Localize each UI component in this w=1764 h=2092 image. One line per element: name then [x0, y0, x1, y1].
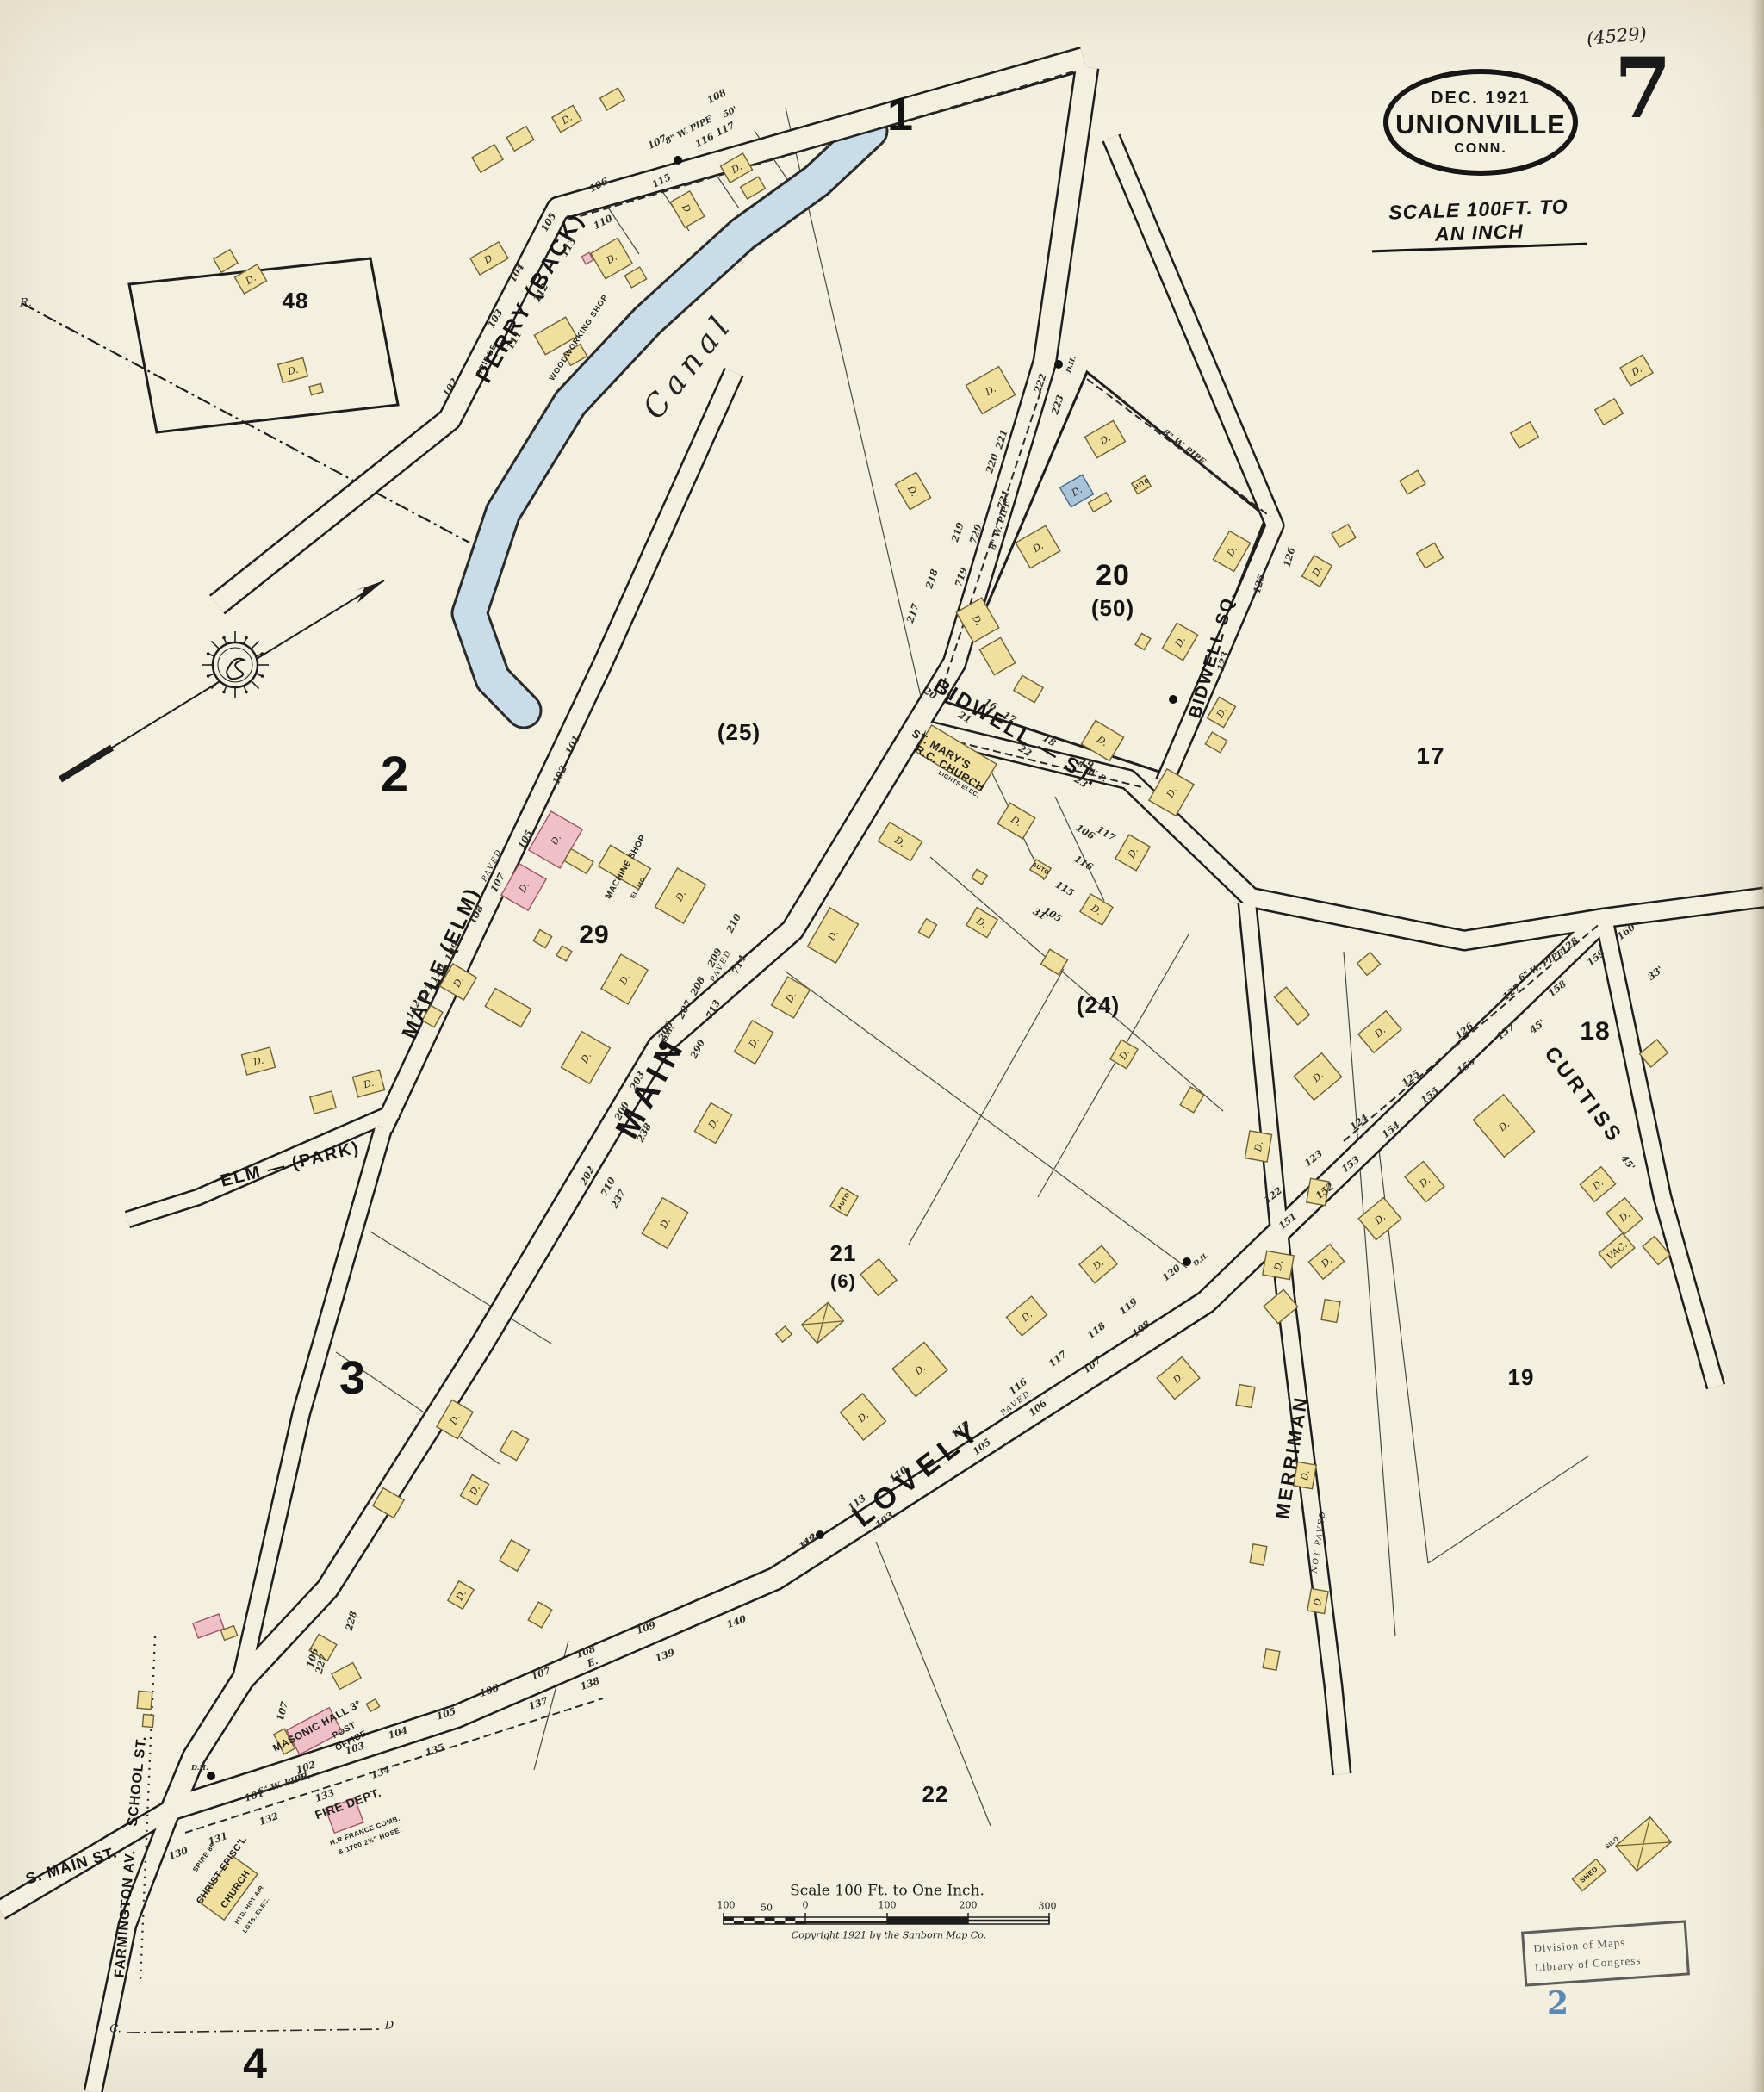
paper-edge-shadow — [1750, 0, 1764, 2092]
house-number: 102 — [441, 376, 459, 398]
district-number: 4 — [243, 2042, 267, 2085]
house-number: E. — [586, 1656, 599, 1669]
house-number: 107 — [646, 133, 668, 151]
scale-text: 100 — [717, 1901, 736, 1910]
street-label: MERRIMAN — [1273, 1394, 1311, 1521]
sanborn-map-sheet: D.D.D.D.D.D.D.D.D.D.D.D.D.D.D.D.D.D.D.D.… — [0, 0, 1764, 2092]
house-number: 107 — [276, 1700, 290, 1722]
house-number: 123 — [1303, 1149, 1325, 1169]
block-number: 29 — [579, 922, 609, 948]
house-number: 130 — [167, 1846, 189, 1861]
scale-text: Scale 100 Ft. to One Inch. — [790, 1884, 984, 1899]
house-number: 107 — [530, 1666, 551, 1681]
house-number: 223 — [1050, 394, 1065, 415]
house-number: 101 — [243, 1788, 264, 1803]
house-number: 101 — [564, 734, 581, 755]
house-number: 45' — [1528, 1018, 1546, 1035]
house-number: 106 — [478, 1683, 500, 1698]
poi-label: AUTO — [837, 1192, 852, 1211]
house-number: 112 — [798, 1532, 819, 1552]
house-number: 122 — [1263, 1186, 1284, 1206]
house-number: 132 — [258, 1811, 279, 1827]
scale-text: 300 — [1039, 1902, 1057, 1911]
house-number: 117 — [1047, 1350, 1069, 1369]
street-label: FARMINGTON AV. — [114, 1849, 139, 1978]
house-number: 217 — [905, 602, 921, 624]
house-number: 219 — [950, 521, 966, 543]
house-number: 228 — [345, 1610, 359, 1631]
house-number: 102 — [551, 764, 568, 785]
poi-label: AUTO — [1031, 861, 1050, 876]
block-number: 21 — [830, 1242, 857, 1264]
house-number: 6" W. PIPE — [1518, 949, 1566, 984]
map-city: UNIONVILLE — [1395, 109, 1566, 140]
house-number: 110 — [592, 214, 613, 231]
house-number: 156 — [1456, 1057, 1477, 1077]
house-number: 105 — [435, 1706, 457, 1722]
poi-label: AUTO — [1132, 478, 1151, 493]
house-number: 159 — [1586, 948, 1607, 968]
house-number: 117 — [1095, 824, 1116, 842]
page-number: 7 — [1614, 40, 1672, 137]
house-number: 115 — [650, 172, 672, 189]
house-number: 135 — [424, 1742, 445, 1758]
house-number: 220 — [984, 452, 1000, 474]
house-number: 115 — [1053, 879, 1075, 897]
house-number: 237 — [610, 1188, 627, 1209]
library-of-congress-stamp: Division of Maps Library of Congress — [1521, 1920, 1690, 1986]
house-number: 160 — [1616, 922, 1637, 942]
map-label-layer: PERRY (BACK)MAPLE (ELM)MAINELM — (PARK)B… — [0, 0, 1764, 2092]
house-number: 137 — [527, 1696, 549, 1711]
house-number: 107 — [1082, 1356, 1103, 1375]
house-number: 153 — [1340, 1155, 1362, 1175]
house-number: D.H. — [1192, 1251, 1210, 1267]
house-number: D.H. — [191, 1764, 208, 1771]
poi-label: WOODWORKING SHOP — [548, 293, 610, 382]
house-number: 120 — [1161, 1263, 1183, 1283]
house-number: 106 — [1028, 1399, 1049, 1418]
italic-label: Copyright 1921 by the Sanborn Map Co. — [792, 1931, 986, 1940]
district-number: 2 — [381, 750, 408, 800]
poi-label: LGTS. ELEC. — [242, 1896, 271, 1934]
house-number: 33' — [1646, 965, 1664, 982]
house-number: 116 — [1072, 854, 1094, 872]
block-number: (25) — [717, 721, 761, 743]
house-number: 729 — [968, 523, 984, 544]
house-number: 218 — [924, 568, 940, 589]
house-number: 118 — [1086, 1321, 1108, 1341]
italic-label: D — [385, 2021, 394, 2032]
house-number: 719 — [953, 566, 969, 587]
publisher-cartouche: DEC. 1921 UNIONVILLE CONN. — [1383, 69, 1578, 176]
house-number: 139 — [654, 1648, 675, 1663]
block-number: (6) — [830, 1272, 856, 1291]
house-number: 208 — [689, 975, 706, 996]
italic-label: C. — [109, 2024, 121, 2035]
poi-label: SILO — [1605, 1835, 1621, 1850]
house-number: 102 — [295, 1760, 316, 1775]
house-number: 154 — [1381, 1120, 1402, 1140]
house-number: 138 — [579, 1676, 600, 1692]
block-number: 19 — [1508, 1366, 1535, 1388]
italic-label: R. — [20, 298, 32, 309]
house-number: 221 — [994, 428, 1009, 450]
house-number: 119 — [1118, 1297, 1140, 1317]
house-number: 222 — [1033, 372, 1048, 394]
house-number: 134 — [370, 1765, 391, 1780]
block-number: 20 — [1096, 561, 1130, 590]
district-number: 3 — [339, 1355, 365, 1401]
block-number: 22 — [922, 1783, 949, 1805]
house-number: 713 — [705, 998, 722, 1020]
italic-label: Canal — [638, 307, 740, 425]
house-number: 127 — [1501, 983, 1523, 1003]
district-number: 1 — [887, 91, 913, 138]
street-label: S. MAIN ST. — [24, 1844, 119, 1886]
house-number: 131 — [207, 1831, 228, 1847]
block-number: (24) — [1077, 994, 1120, 1016]
block-number: 18 — [1580, 1019, 1610, 1045]
scale-text: 50 — [761, 1903, 773, 1913]
house-number: 128 — [1559, 936, 1581, 956]
block-number: (50) — [1091, 597, 1134, 619]
house-number: 124 — [1349, 1113, 1370, 1133]
scale-text: 100 — [879, 1901, 897, 1910]
scale-text: 0 — [803, 1901, 809, 1910]
block-number: 17 — [1416, 744, 1444, 768]
street-label: CURTISS — [1540, 1044, 1625, 1148]
house-number: 152 — [1314, 1182, 1336, 1201]
street-label: SCHOOL ST. — [127, 1735, 150, 1828]
poi-label: EL. MO. — [630, 874, 649, 899]
italic-label: NOT PAVED — [1311, 1510, 1327, 1574]
poi-label: MACHINE SHOP — [605, 834, 649, 901]
registration-number: 2 — [1547, 1988, 1568, 2019]
house-number: 45' — [1619, 1153, 1637, 1172]
street-label: ELM — (PARK) — [219, 1139, 362, 1190]
house-number: 106 — [587, 177, 609, 194]
house-number: 202 — [579, 1164, 596, 1186]
house-number: 126 — [1454, 1021, 1475, 1041]
scale-note: SCALE 100FT. TO AN INCH — [1370, 195, 1587, 253]
house-number: 108 — [1131, 1319, 1152, 1339]
street-label: BIDWELL SQ. — [1186, 589, 1239, 720]
house-number: 140 — [725, 1614, 747, 1630]
map-date: DEC. 1921 — [1431, 89, 1531, 109]
house-number: 714 — [730, 953, 748, 975]
house-number: 155 — [1419, 1086, 1441, 1106]
house-number: 8" W. PIPE — [1160, 429, 1206, 468]
house-number: 109 — [635, 1620, 656, 1636]
house-number: 126 — [1283, 546, 1297, 568]
house-number: 125 — [1252, 573, 1267, 594]
block-number: 48 — [283, 289, 309, 312]
house-number: 105 — [517, 829, 534, 850]
house-number: 158 — [1547, 979, 1568, 999]
house-number: 50' — [722, 106, 739, 121]
house-number: 108 — [705, 88, 727, 105]
scale-text: 200 — [960, 1901, 978, 1910]
house-number: D.H. — [1065, 355, 1076, 373]
house-number: 117 — [714, 121, 736, 138]
house-number: 210 — [725, 912, 742, 934]
house-number: 125 — [1401, 1069, 1422, 1089]
house-number: 116 — [693, 132, 715, 149]
house-number: 106 — [1074, 823, 1096, 841]
map-state: CONN. — [1454, 141, 1507, 157]
poi-label: SHED — [1579, 1865, 1599, 1884]
house-number: 151 — [1277, 1212, 1299, 1232]
house-number: 104 — [387, 1725, 408, 1741]
house-number: 207 — [676, 998, 693, 1020]
house-number: 290 — [689, 1038, 706, 1059]
house-number: 157 — [1495, 1022, 1517, 1042]
